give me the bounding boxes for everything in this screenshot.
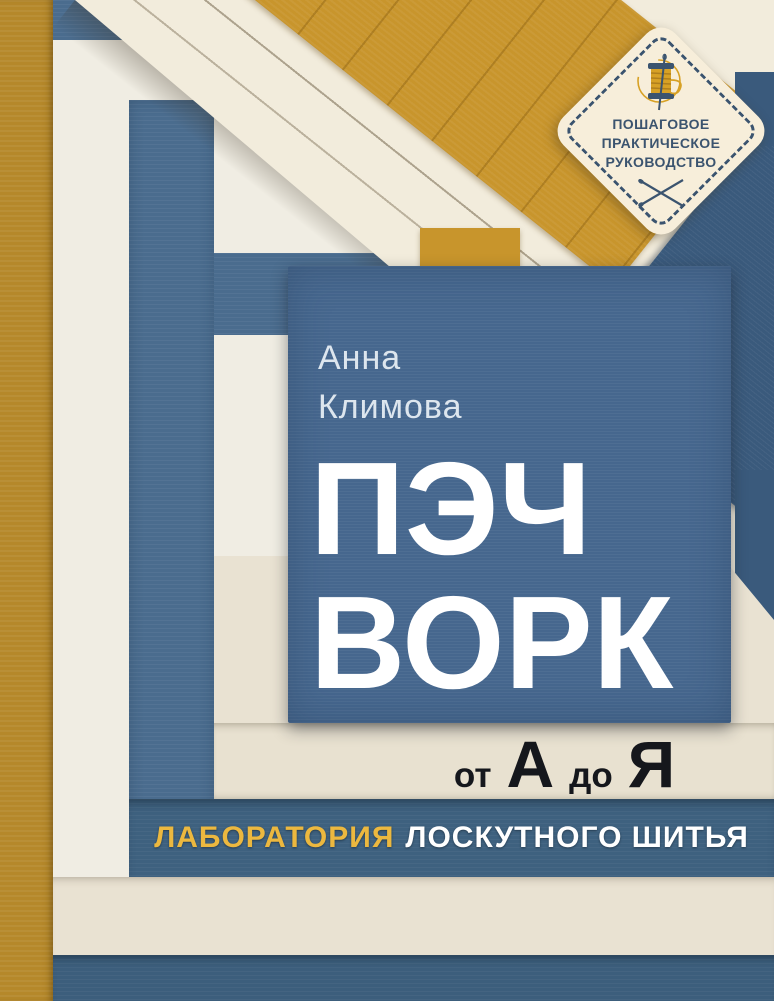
book-title: ПЭЧ ВОРК — [310, 442, 673, 710]
title-line-2: ВОРК — [310, 576, 673, 710]
book-cover: Анна Климова ПЭЧ ВОРК от А до Я ЛАБОРАТО… — [0, 0, 774, 1001]
badge-line-2: ПРАКТИЧЕСКОЕ — [602, 134, 721, 153]
thread-spool-icon — [634, 52, 688, 112]
badge-line-1: ПОШАГОВОЕ — [602, 115, 721, 134]
badge: ПОШАГОВОЕ ПРАКТИЧЕСКОЕ РУКОВОДСТВО — [549, 19, 772, 242]
badge-content: ПОШАГОВОЕ ПРАКТИЧЕСКОЕ РУКОВОДСТВО — [558, 52, 764, 210]
tagline-highlight: ЛАБОРАТОРИЯ — [154, 821, 394, 855]
title-panel: Анна Климова ПЭЧ ВОРК — [288, 266, 731, 723]
bottom-cream-band — [53, 877, 774, 955]
badge-line-3: РУКОВОДСТВО — [602, 153, 721, 172]
author-first-name: Анна — [318, 334, 463, 383]
bottom-navy-band — [53, 955, 774, 1001]
subtitle-range: от А до Я — [380, 723, 764, 799]
quilt-navy-vertical-strip — [129, 100, 214, 877]
subtitle-letter-ya: Я — [628, 729, 675, 799]
tagline: ЛАБОРАТОРИЯ ЛОСКУТНОГО ШИТЬЯ — [129, 799, 774, 877]
title-line-1: ПЭЧ — [310, 442, 673, 576]
badge-text: ПОШАГОВОЕ ПРАКТИЧЕСКОЕ РУКОВОДСТВО — [602, 115, 721, 172]
left-binding-strip — [0, 0, 53, 1001]
crossed-needles-icon — [632, 176, 690, 210]
tagline-rest: ЛОСКУТНОГО ШИТЬЯ — [405, 821, 748, 855]
subtitle-letter-a: А — [506, 729, 554, 799]
author-last-name: Климова — [318, 383, 463, 432]
author-name: Анна Климова — [318, 334, 463, 432]
